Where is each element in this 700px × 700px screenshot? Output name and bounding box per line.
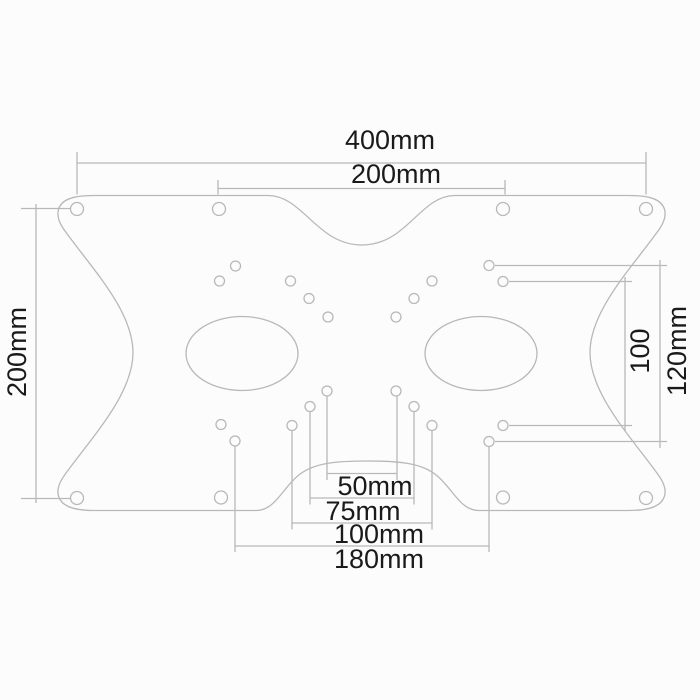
mounting-hole bbox=[427, 421, 437, 431]
dim-50mm-lines bbox=[327, 397, 397, 481]
mounting-hole bbox=[305, 402, 315, 412]
oval-cutout-left bbox=[186, 317, 298, 391]
dim-100-right-lines bbox=[509, 277, 632, 431]
mounting-hole bbox=[215, 276, 225, 286]
mounting-hole bbox=[323, 312, 333, 322]
mounting-hole bbox=[71, 203, 84, 216]
mounting-holes bbox=[71, 203, 653, 505]
mounting-hole bbox=[71, 492, 84, 505]
dimension-drawing: 400mm 200mm 200mm 100 120mm 50mm 75mm 10… bbox=[0, 0, 700, 700]
mounting-hole bbox=[213, 203, 226, 216]
mounting-hole bbox=[304, 294, 314, 304]
mounting-hole bbox=[391, 312, 401, 322]
mounting-hole bbox=[484, 437, 494, 447]
plate-outline bbox=[58, 196, 665, 511]
mounting-hole bbox=[286, 276, 296, 286]
dim-label-left-height: 200mm bbox=[3, 292, 31, 412]
plate-drawing bbox=[0, 0, 700, 700]
mounting-hole bbox=[215, 491, 228, 504]
dim-label-top-inner-width: 200mm bbox=[336, 160, 456, 188]
mounting-hole bbox=[498, 421, 508, 431]
mounting-hole bbox=[231, 261, 241, 271]
dim-label-right-inner-height: 100 bbox=[626, 291, 654, 411]
mounting-hole bbox=[497, 491, 510, 504]
mounting-hole bbox=[484, 261, 494, 271]
oval-cutout-right bbox=[425, 317, 537, 391]
mounting-hole bbox=[287, 421, 297, 431]
dim-label-top-width: 400mm bbox=[330, 126, 450, 154]
mounting-hole bbox=[230, 436, 240, 446]
mounting-hole bbox=[322, 386, 332, 396]
mounting-hole bbox=[640, 492, 653, 505]
mounting-hole bbox=[409, 402, 419, 412]
mounting-hole bbox=[497, 203, 510, 216]
dim-label-right-outer-height: 120mm bbox=[663, 291, 691, 411]
mounting-hole bbox=[427, 276, 437, 286]
mounting-hole bbox=[409, 294, 419, 304]
mounting-hole bbox=[216, 420, 226, 430]
mounting-hole bbox=[640, 203, 653, 216]
mounting-hole bbox=[498, 277, 508, 287]
mounting-hole bbox=[391, 386, 401, 396]
dim-label-bottom-180: 180mm bbox=[319, 545, 439, 573]
